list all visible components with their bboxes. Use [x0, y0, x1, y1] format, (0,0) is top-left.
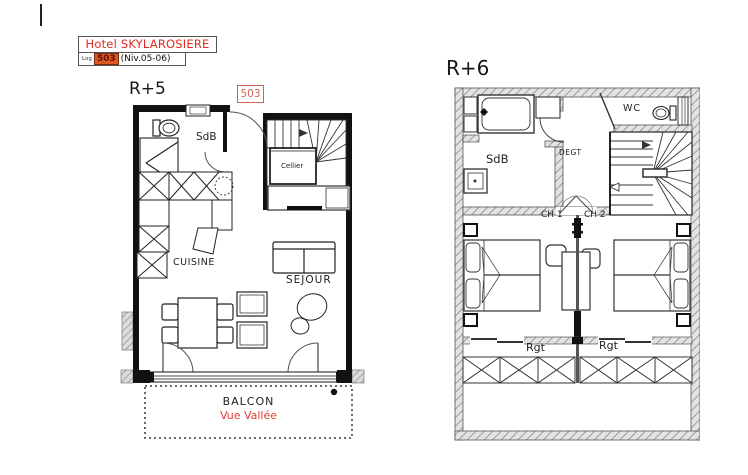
dining-chair: [217, 304, 233, 320]
pillow: [466, 243, 480, 272]
dining-chair: [162, 327, 178, 343]
floorplan-sheet: Hotel SKYLAROSIERE Log 503 (Niv.05-06) R…: [0, 0, 748, 475]
hall-closet: [536, 97, 560, 118]
room-label-cuisine: CUISINE: [173, 257, 215, 268]
wall-cabinet: [186, 105, 210, 116]
room-label-sdb-r6: SdB: [486, 152, 509, 166]
floor-r6-title: R+6: [446, 56, 489, 80]
room-label-ch1: CH 1: [541, 210, 563, 220]
toilet-icon-r6: [653, 106, 676, 120]
washbasin-icon: [464, 169, 487, 193]
toilet-icon: [153, 120, 179, 136]
level-label: (Niv.05-06): [121, 54, 171, 65]
storage-wall: [463, 336, 692, 345]
bathroom-shelves: [463, 97, 479, 142]
unit-info-row: Log 503 (Niv.05-06): [78, 53, 186, 66]
room-label-sdb-r5: SdB: [196, 131, 217, 143]
log-label: Log: [82, 54, 92, 65]
dining-chair: [162, 304, 178, 320]
room-label-ch2: CH 2: [584, 210, 606, 220]
room-label-cellier: Cellier: [281, 162, 303, 170]
ottoman-squares: [237, 292, 267, 348]
dining-chair: [217, 327, 233, 343]
page-tick-mark: [40, 4, 42, 26]
desk: [546, 245, 600, 310]
floorplan-r6: [448, 85, 700, 445]
room-label-rgt-left: Rgt: [526, 341, 545, 354]
room-label-balcon: BALCON: [145, 395, 352, 408]
stair-handrail: [643, 169, 667, 177]
staircase-r6: [610, 132, 692, 215]
floorplan-r5: [120, 100, 365, 445]
room-label-wc: WC: [623, 103, 641, 114]
balcony-view-label: Vue Vallée: [145, 409, 352, 422]
duct-wall: [678, 97, 688, 125]
stair-direction-arrow: [299, 129, 308, 137]
wc-bottom-wall: [614, 125, 692, 132]
dining-table: [162, 298, 233, 348]
bed-ch1: [464, 240, 540, 311]
hotel-name: Hotel SKYLAROSIERE: [78, 36, 217, 53]
bed-ch2: [614, 240, 690, 311]
room-label-degt: DEGT: [559, 148, 582, 157]
sofa: [273, 242, 335, 273]
floor-r5-title: R+5: [129, 79, 166, 99]
bathtub-icon: [478, 95, 534, 133]
title-block: Hotel SKYLAROSIERE Log 503 (Niv.05-06): [78, 36, 217, 66]
bathroom-door: [205, 152, 225, 172]
window-band: [150, 372, 340, 382]
room-label-rgt-right: Rgt: [599, 339, 618, 352]
pillow: [674, 279, 688, 308]
unit-number-badge: 503: [94, 53, 119, 65]
pillow: [674, 243, 688, 272]
entry-door: [230, 112, 267, 149]
understair-closet: [268, 186, 350, 210]
wc-door: [600, 93, 615, 129]
pillow: [466, 279, 480, 308]
sdb-door: [540, 118, 564, 142]
room-label-sejour: SEJOUR: [286, 274, 332, 286]
plant-icon: [289, 290, 330, 336]
